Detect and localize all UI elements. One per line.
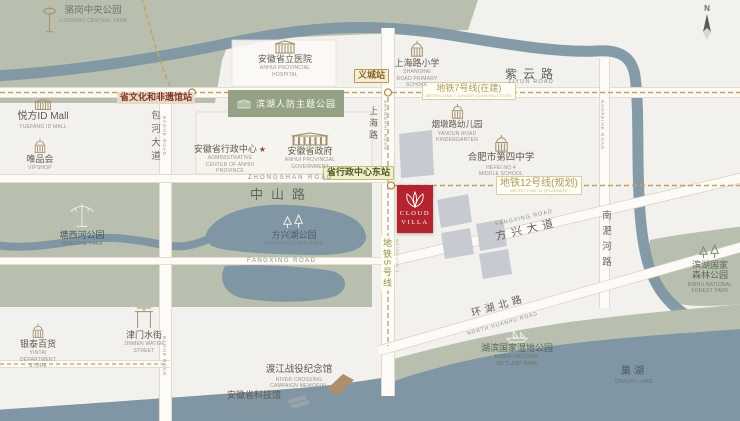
- poi-yuefang-en: YUEFANG ID MALL: [19, 124, 67, 130]
- building-icon: [31, 138, 49, 154]
- poi-shanghai-primary-en: SHANGHAI ROAD PRIMARY SCHOOL: [395, 69, 439, 88]
- metro-line7-en: METRO LINE 7 (UNDER CONSTRUCTION): [426, 94, 512, 98]
- poi-wetland-en: HUBIN NATIONAL WETLAND PARK: [482, 354, 552, 367]
- school-icon: [492, 134, 511, 153]
- building-icon: [272, 40, 298, 54]
- poi-hospital-en: ANHUI PROVINCIAL HOSPITAL: [250, 65, 320, 78]
- metro-line5-label: 地铁5号线 METRO LINE 5: [381, 236, 400, 291]
- poi-science-zh: 安徽省科技馆: [227, 390, 281, 400]
- poi-dujiang-zh: 渡江战役纪念馆: [266, 365, 333, 376]
- poi-kindergarten-zh: 烟墩路幼儿园: [431, 120, 482, 130]
- poi-luogang-en: LUOGANG CENTRAL PARK: [59, 18, 127, 24]
- poi-forest-zh: 滨湖国家森林公园: [689, 260, 731, 281]
- station-circle: [388, 182, 395, 189]
- cloud-villa-logo-icon: [404, 191, 426, 208]
- road-label-fangxing-en: FANGXING ROAD: [247, 258, 317, 264]
- poi-jinmen-zh: 津门水街: [126, 330, 162, 340]
- poi-shanghai-primary-zh: 上海路小学: [394, 58, 439, 68]
- poi-jinmen-water-street: 津门水街 JINMEN WATER STREET: [118, 306, 170, 354]
- road-label-baohe-en: BAOHE ROAD: [162, 116, 167, 156]
- poi-wetland-park: 湖滨国家湿地公园 HUBIN NATIONAL WETLAND PARK: [477, 328, 557, 367]
- umbrella-icon: [68, 200, 96, 230]
- poi-gov-zh: 安徽省政府: [287, 146, 332, 156]
- building-icon: [236, 99, 252, 109]
- poi-fangxinghu-zh: 方兴湖公园: [271, 230, 316, 240]
- trees-icon: [281, 213, 307, 230]
- poi-wetland-zh: 湖滨国家湿地公园: [481, 343, 553, 353]
- poi-fangxinghu-en: FANGXING LAKE PARK: [265, 241, 323, 247]
- station-label-yicheng: 义城站: [354, 69, 389, 83]
- poi-no4-zh: 合肥市第四中学: [468, 153, 535, 164]
- poi-no4-en: HEFEI NO.4 MIDDLE SCHOOL: [476, 165, 526, 178]
- location-map: 省文化和非遗馆站 义城站 省行政中心东站 地铁7号线(在建) METRO LIN…: [0, 0, 740, 421]
- poi-vipshop-zh: 唯品会: [26, 154, 53, 164]
- poi-vipshop-en: VIPSHOP: [28, 165, 52, 171]
- compass-needle-icon: [702, 14, 712, 40]
- metro-line5-zh: 地铁5号线: [381, 236, 394, 291]
- road-label-shanghai-en: SHANGHAI ROAD: [383, 100, 388, 151]
- compass-n-label: N: [704, 4, 710, 13]
- school-icon: [408, 40, 426, 58]
- poi-gov-en: ANHUI PROVINCIAL GOVERNMENT: [284, 157, 336, 170]
- poi-admin-center-en: ADMINISTRATIVE CENTER OF ANHUI PROVINCE: [200, 155, 260, 174]
- poi-yintai-zh: 银泰百货: [20, 339, 56, 349]
- poi-chaohu-en: CHAOHU LAKE: [615, 379, 653, 385]
- poi-provincial-government: 安徽省政府 ANHUI PROVINCIAL GOVERNMENT: [282, 132, 338, 170]
- poi-luogang-park: 骆岗中央公园 LUOGANG CENTRAL PARK: [42, 6, 127, 35]
- trees-icon: [697, 243, 723, 260]
- government-icon: [288, 132, 332, 146]
- poi-yuefang-mall: 悦方ID Mall YUEFANG ID MALL: [12, 98, 74, 130]
- road-label-nanfeihe-zh: 南淝河路: [598, 210, 612, 272]
- poi-no4-school: 合肥市第四中学 HEFEI NO.4 MIDDLE SCHOOL: [466, 134, 536, 177]
- fangxing-lake-south: [222, 265, 345, 302]
- mall-icon: [33, 98, 53, 111]
- road-label-nanfeihe-en: NANFEIHE ROAD: [600, 100, 605, 150]
- road-label-ziyun-en: ZIYUN ROAD: [508, 79, 554, 85]
- road-label-zhongshan-zh: 中山路: [250, 184, 313, 203]
- fangxing-road-west: [0, 257, 392, 265]
- kindergarten-icon: [449, 103, 466, 120]
- poi-tangxihe-park: 塘西河公园 TANGXIHE PARK: [52, 200, 112, 248]
- road-label-baohe-zh: 包河大道: [147, 110, 161, 164]
- poi-tangxihe-en: TANGXIHE PARK: [61, 241, 103, 247]
- poi-fangxing-lake-park: 方兴湖公园 FANGXING LAKE PARK: [262, 213, 326, 248]
- poi-forest-en: BINHU NATIONAL FOREST PARK: [686, 282, 734, 295]
- poi-hospital-zh: 安徽省立医院: [258, 54, 312, 64]
- cloud-villa-marker: CLOUD VILLA: [397, 185, 433, 233]
- poi-shanghai-primary: 上海路小学 SHANGHAI ROAD PRIMARY SCHOOL: [394, 40, 440, 88]
- poi-vipshop: 唯品会 VIPSHOP: [16, 138, 64, 172]
- project-name-line2: VILLA: [400, 219, 430, 228]
- poi-yuefang-zh: 悦方ID Mall: [17, 111, 68, 123]
- poi-jinmen-en: JINMEN WATER STREET: [120, 341, 168, 354]
- poi-provincial-hospital: 安徽省立医院 ANHUI PROVINCIAL HOSPITAL: [240, 40, 330, 78]
- star-icon: ★: [259, 145, 266, 154]
- poi-admin-center-zh: 安徽省行政中心: [194, 144, 257, 154]
- station-label-wenhua: 省文化和非遗馆站: [117, 92, 195, 104]
- poi-chaohu-lake: 巢湖 CHAOHU LAKE: [606, 366, 662, 385]
- compass: N: [702, 4, 712, 40]
- store-icon: [29, 323, 47, 339]
- poi-forest-park: 滨湖国家森林公园 BINHU NATIONAL FOREST PARK: [684, 243, 736, 294]
- metro-line12-label: 地铁12号线(规划) METRO LINE 12 (PLANNED): [496, 176, 582, 195]
- metro-line12-en: METRO LINE 12 (PLANNED): [500, 189, 578, 193]
- station-circle: [385, 89, 392, 96]
- poi-luogang-zh: 骆岗中央公园: [59, 6, 127, 17]
- poi-chaohu-zh: 巢湖: [621, 366, 647, 378]
- tower-icon: [42, 6, 57, 35]
- gate-icon: [134, 306, 154, 330]
- poi-science-museum: 安徽省科技馆 ANHUI SCIENCE AND TECHNOLOGY MUSE…: [222, 390, 286, 413]
- road-label-shanghai-zh: 上海路: [367, 106, 380, 142]
- metro-line5-en: METRO LINE 5: [395, 236, 400, 291]
- poi-renfang-park: 滨湖人防主题公园: [228, 90, 344, 117]
- ship-icon: [504, 328, 530, 343]
- road-label-zhongshan-en: ZHONGSHAN ROAD: [248, 175, 333, 181]
- poi-yintai-en: YINTAI DEPARTMENT STORE: [13, 350, 63, 369]
- poi-tangxihe-zh: 塘西河公园: [59, 230, 104, 240]
- project-name-line1: CLOUD: [400, 210, 430, 219]
- poi-admin-center: 安徽省行政中心 ★ ADMINISTRATIVE CENTER OF ANHUI…: [194, 144, 266, 174]
- poi-renfang-zh: 滨湖人防主题公园: [256, 97, 336, 110]
- poi-yintai: 银泰百货 YINTAI DEPARTMENT STORE: [12, 323, 64, 369]
- poi-science-en: ANHUI SCIENCE AND TECHNOLOGY MUSEUM: [224, 401, 284, 412]
